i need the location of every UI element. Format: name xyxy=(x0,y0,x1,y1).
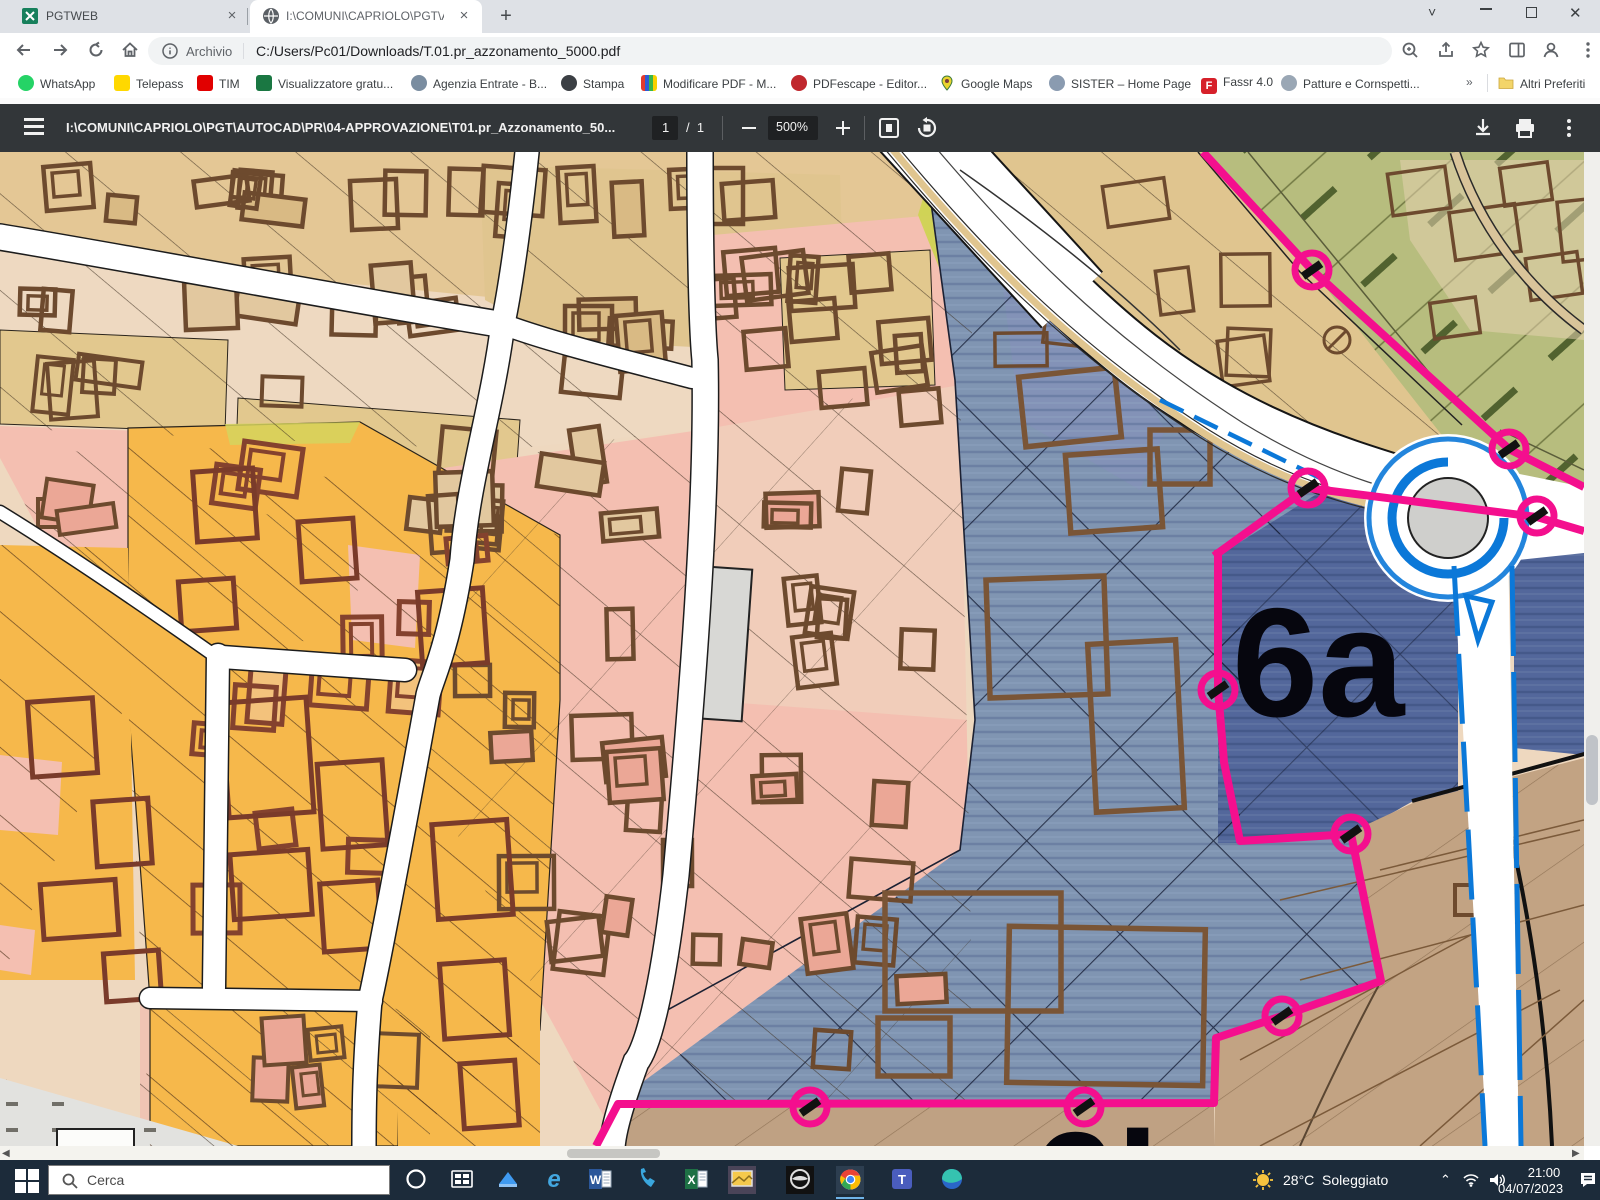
svg-text:6b: 6b xyxy=(1030,1100,1211,1146)
svg-text:X: X xyxy=(687,1173,695,1187)
svg-text:6a: 6a xyxy=(1232,576,1406,749)
svg-text:W: W xyxy=(590,1173,602,1187)
svg-text:T: T xyxy=(898,1172,906,1187)
